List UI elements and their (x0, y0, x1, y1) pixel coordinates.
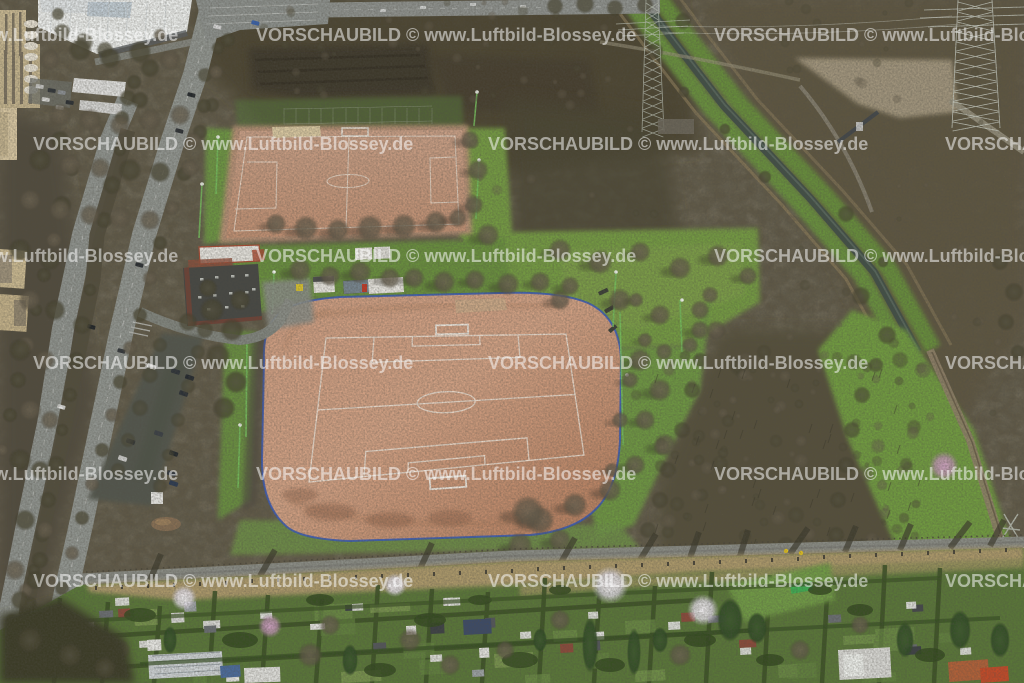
svg-text:VORSCHAUBILD © www.Luftbild-Bl: VORSCHAUBILD © www.Luftbild-Blossey.de (488, 571, 868, 591)
svg-text:VORSCHAUBILD © www.Luftbild-Bl: VORSCHAUBILD © www.Luftbild-Blossey.de (714, 464, 1024, 484)
svg-text:VORSCHAUBILD © www.Luftbild-Bl: VORSCHAUBILD © www.Luftbild-Blossey.de (945, 353, 1024, 373)
svg-text:VORSCHAUBILD © www.Luftbild-Bl: VORSCHAUBILD © www.Luftbild-Blossey.de (33, 353, 413, 373)
svg-text:VORSCHAUBILD © www.Luftbild-Bl: VORSCHAUBILD © www.Luftbild-Blossey.de (0, 25, 178, 45)
svg-text:VORSCHAUBILD © www.Luftbild-Bl: VORSCHAUBILD © www.Luftbild-Blossey.de (488, 353, 868, 373)
svg-text:VORSCHAUBILD © www.Luftbild-Bl: VORSCHAUBILD © www.Luftbild-Blossey.de (0, 464, 178, 484)
svg-text:VORSCHAUBILD © www.Luftbild-Bl: VORSCHAUBILD © www.Luftbild-Blossey.de (714, 246, 1024, 266)
svg-text:VORSCHAUBILD © www.Luftbild-Bl: VORSCHAUBILD © www.Luftbild-Blossey.de (714, 25, 1024, 45)
svg-text:VORSCHAUBILD © www.Luftbild-Bl: VORSCHAUBILD © www.Luftbild-Blossey.de (33, 571, 413, 591)
svg-text:VORSCHAUBILD © www.Luftbild-Bl: VORSCHAUBILD © www.Luftbild-Blossey.de (945, 571, 1024, 591)
svg-text:VORSCHAUBILD © www.Luftbild-Bl: VORSCHAUBILD © www.Luftbild-Blossey.de (33, 134, 413, 154)
svg-text:VORSCHAUBILD © www.Luftbild-Bl: VORSCHAUBILD © www.Luftbild-Blossey.de (488, 134, 868, 154)
svg-text:VORSCHAUBILD © www.Luftbild-Bl: VORSCHAUBILD © www.Luftbild-Blossey.de (256, 25, 636, 45)
svg-text:VORSCHAUBILD © www.Luftbild-Bl: VORSCHAUBILD © www.Luftbild-Blossey.de (256, 246, 636, 266)
svg-text:VORSCHAUBILD © www.Luftbild-Bl: VORSCHAUBILD © www.Luftbild-Blossey.de (256, 464, 636, 484)
svg-text:VORSCHAUBILD © www.Luftbild-Bl: VORSCHAUBILD © www.Luftbild-Blossey.de (0, 246, 178, 266)
svg-text:VORSCHAUBILD © www.Luftbild-Bl: VORSCHAUBILD © www.Luftbild-Blossey.de (945, 134, 1024, 154)
